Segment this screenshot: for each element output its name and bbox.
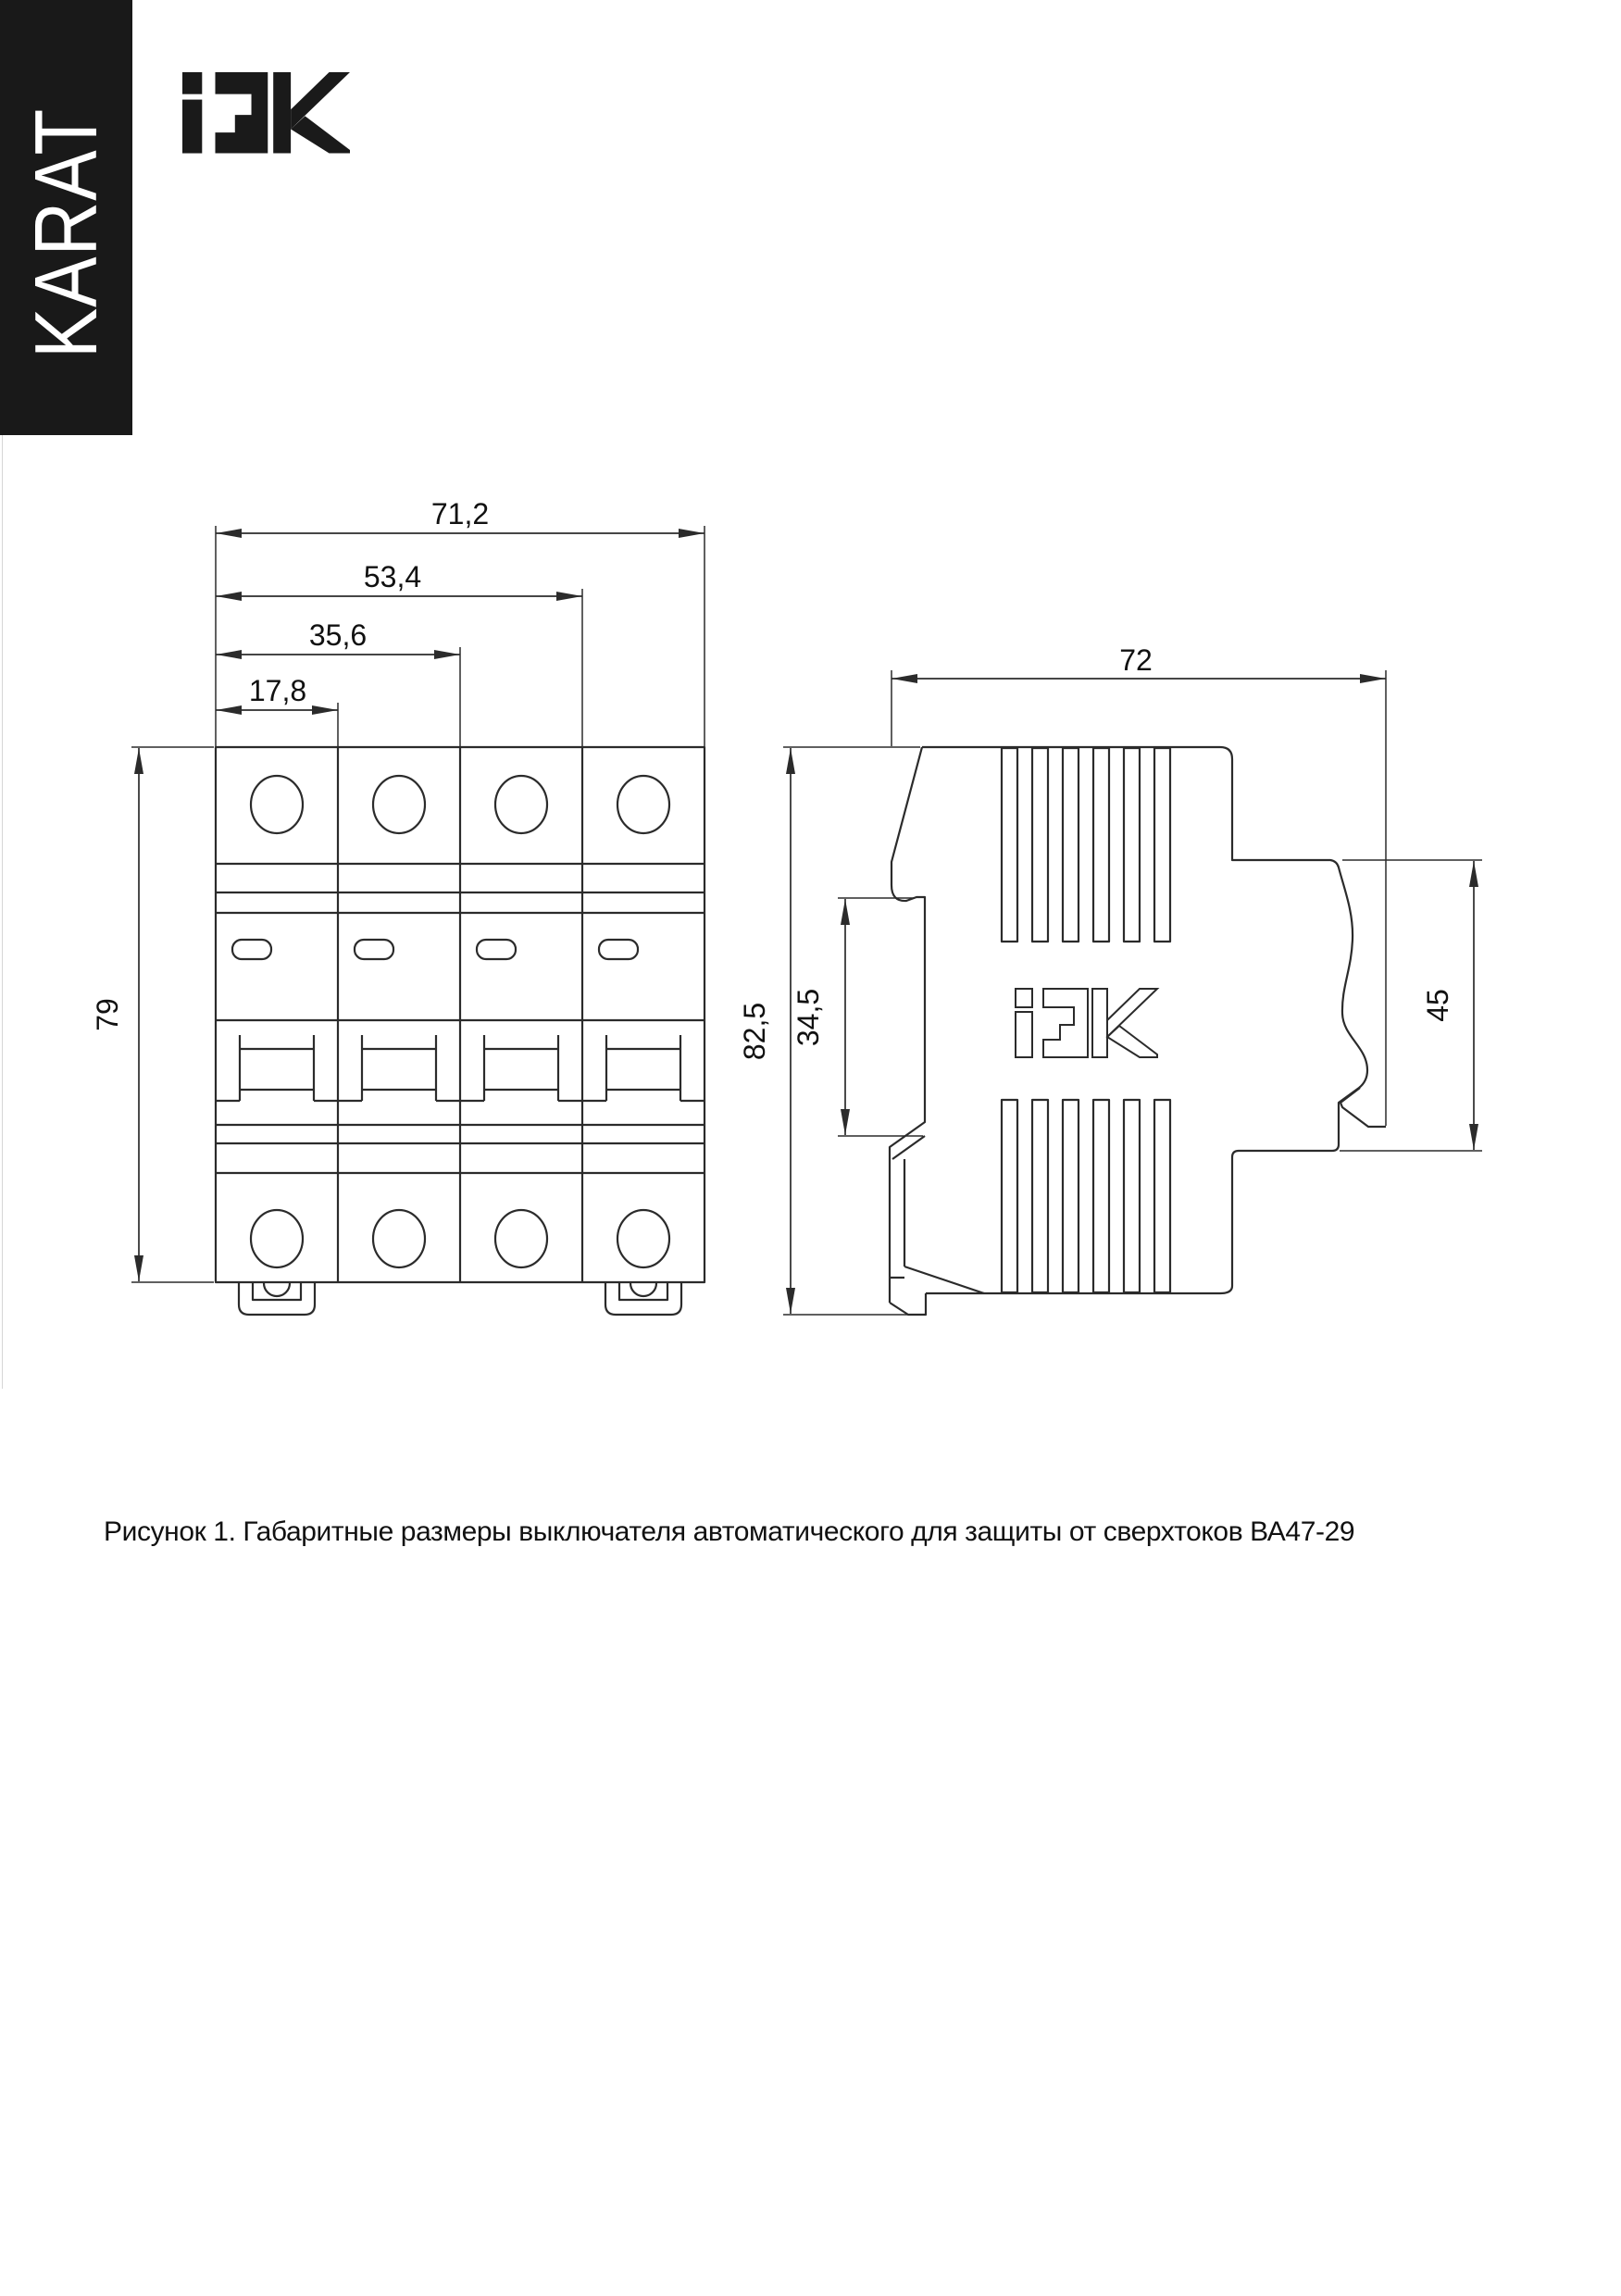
pole-dividers — [338, 747, 582, 1282]
dim-label-front-height: 79 — [91, 998, 124, 1031]
side-left-profile — [890, 747, 984, 1315]
dim-label-front-three-pole: 53,4 — [364, 560, 421, 593]
vent-slots-bottom — [1002, 1100, 1170, 1292]
vent-slots-top — [1002, 748, 1170, 942]
dim-label-front-one-pole: 17,8 — [249, 674, 306, 707]
mounting-tabs — [239, 1282, 681, 1315]
dim-label-side-din-channel: 34,5 — [792, 989, 825, 1046]
figure-caption: Рисунок 1. Габаритные размеры выключател… — [104, 1516, 1354, 1548]
technical-drawing: 71,2 53,4 35,6 17,8 79 — [0, 0, 1621, 2296]
toggle-handle — [338, 1035, 460, 1101]
front-dimensions: 71,2 53,4 35,6 17,8 79 — [91, 497, 705, 1282]
terminal-clamp-tooth — [1340, 1088, 1386, 1127]
toggle-handle — [460, 1035, 582, 1101]
dim-label-front-two-pole: 35,6 — [309, 618, 367, 652]
toggle-handle — [216, 1035, 338, 1101]
iek-logo-outline-icon — [1016, 989, 1157, 1057]
dim-label-front-total-width: 71,2 — [431, 497, 489, 530]
dim-label-side-terminal-zone: 45 — [1421, 989, 1454, 1022]
dim-label-side-total-height: 82,5 — [738, 1003, 771, 1060]
front-view — [216, 747, 705, 1315]
page: KARAT — [0, 0, 1621, 2296]
side-body-outline — [922, 747, 1367, 1293]
label-windows — [232, 940, 638, 959]
dim-label-side-depth: 72 — [1119, 643, 1153, 677]
side-view — [890, 747, 1386, 1315]
toggle-handle — [582, 1035, 705, 1101]
iek-logo — [182, 72, 350, 154]
